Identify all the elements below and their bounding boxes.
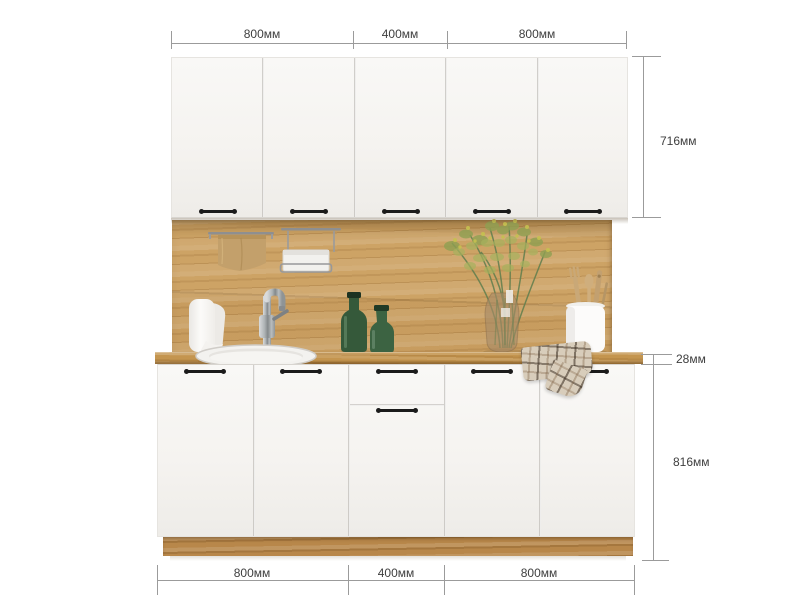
wall-door-handle xyxy=(384,210,418,213)
door-gap xyxy=(539,365,541,536)
dim-tick xyxy=(641,364,672,365)
base-door-handle xyxy=(378,409,416,412)
dim-line xyxy=(157,580,635,581)
door-gap xyxy=(262,58,264,217)
drawer-handle xyxy=(378,370,416,373)
dim-label-bottom-middle: 400мм xyxy=(366,566,426,580)
kitchen-product-diagram: 800мм 400мм 800мм xyxy=(0,0,800,600)
plinth xyxy=(163,537,633,556)
dim-tick xyxy=(641,354,672,355)
wall-door-handle xyxy=(292,210,326,213)
drawer-gap xyxy=(350,404,444,406)
base-door-handle xyxy=(186,370,224,373)
dim-tick xyxy=(642,560,669,561)
wall-cabinets xyxy=(171,57,628,218)
wall-door-handle xyxy=(201,210,235,213)
dim-line xyxy=(653,364,654,560)
dim-line xyxy=(643,56,644,217)
dim-tick xyxy=(632,56,661,57)
dim-label-wall-height: 716мм xyxy=(660,134,697,148)
door-gap xyxy=(537,58,539,217)
dim-label-bottom-right: 800мм xyxy=(509,566,569,580)
wall-door-handle xyxy=(475,210,509,213)
dim-tick xyxy=(157,565,158,595)
dim-tick xyxy=(444,565,445,595)
dim-tick xyxy=(632,217,661,218)
door-gap xyxy=(253,365,255,536)
door-gap xyxy=(444,365,446,536)
wall-door-handle xyxy=(566,210,600,213)
dim-tick xyxy=(348,565,349,595)
wall-cabinet-shadow xyxy=(171,218,628,224)
dim-line xyxy=(653,354,654,364)
dim-label-base-height: 816мм xyxy=(673,455,710,469)
door-gap xyxy=(445,58,447,217)
dim-label-countertop: 28мм xyxy=(676,352,706,366)
door-gap xyxy=(348,365,350,536)
floor-shadow xyxy=(170,556,626,561)
door-gap xyxy=(354,58,356,217)
base-door-handle xyxy=(473,370,511,373)
base-door-handle xyxy=(282,370,320,373)
dim-tick xyxy=(634,565,635,595)
dim-label-bottom-left: 800мм xyxy=(222,566,282,580)
